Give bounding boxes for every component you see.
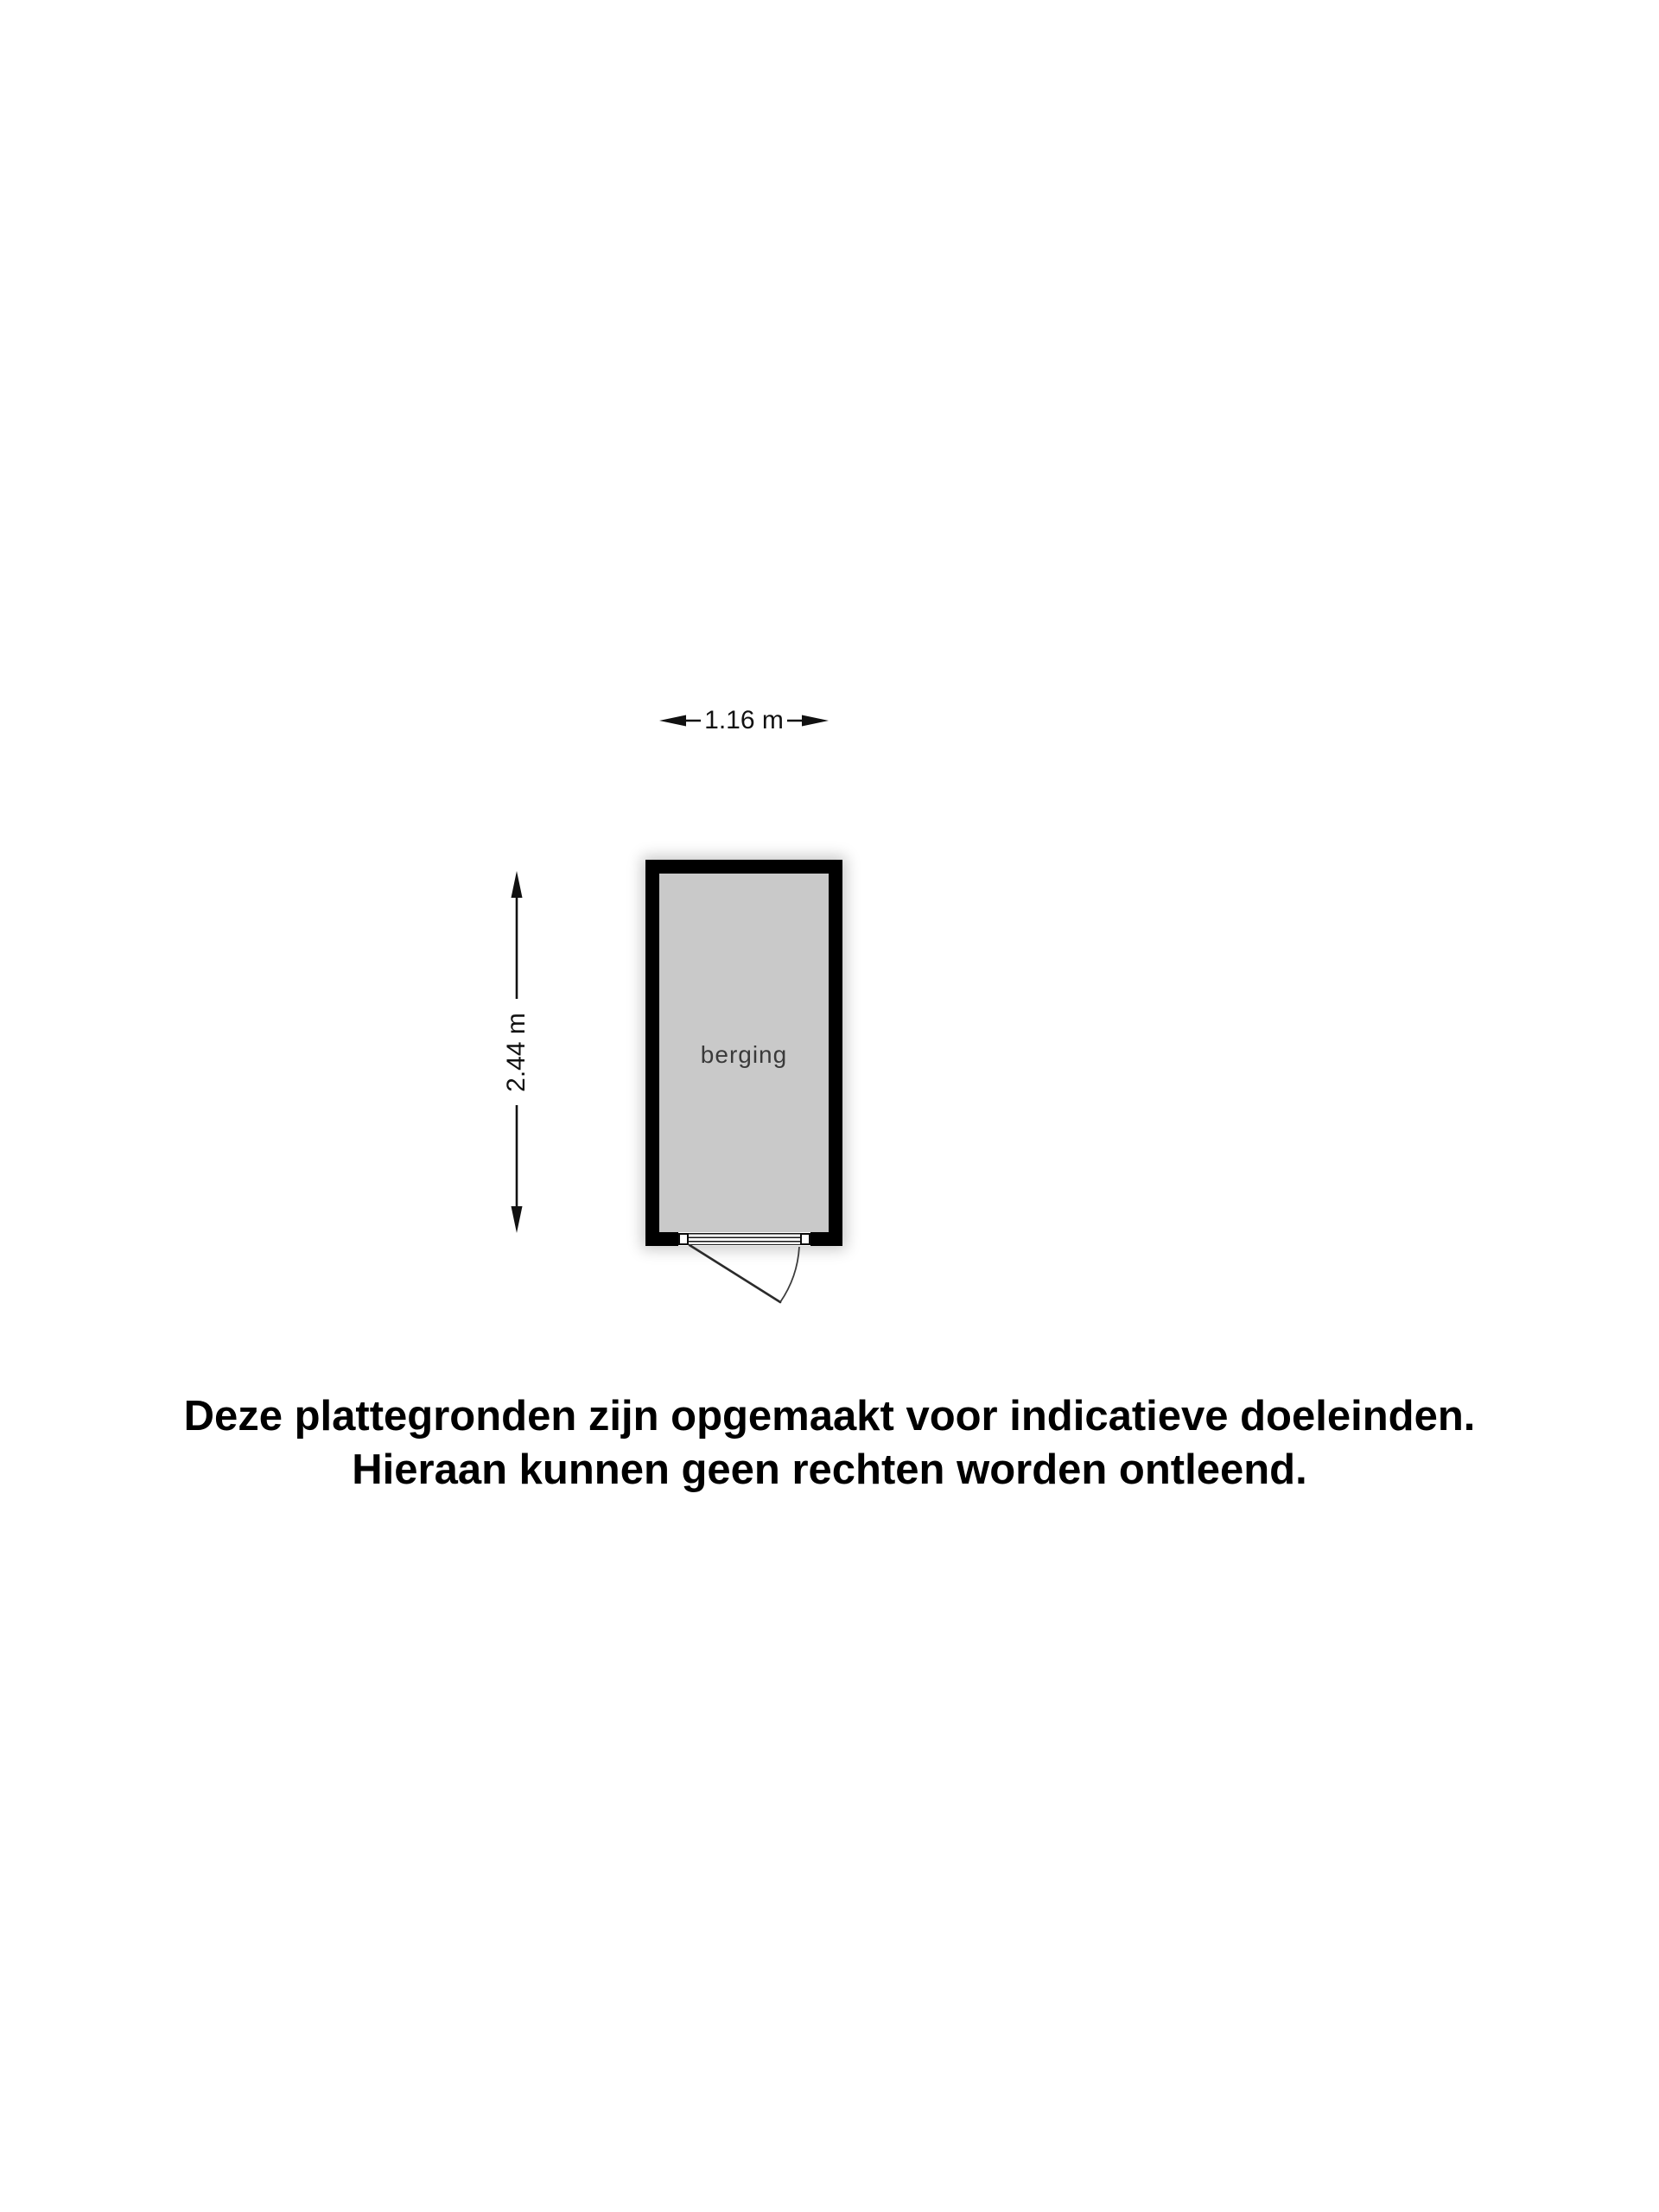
width-dimension: 1.16 m xyxy=(659,708,829,734)
height-dimension-label: 2.44 m xyxy=(504,1013,530,1092)
disclaimer-line-1: Deze plattegronden zijn opgemaakt voor i… xyxy=(0,1389,1659,1443)
floorplan-canvas: 1.16 m 2.44 m berging Deze plattegronde xyxy=(0,0,1659,2212)
dimension-arrow-up-icon xyxy=(505,871,528,999)
width-dimension-label: 1.16 m xyxy=(704,708,784,734)
dimension-arrow-right-icon xyxy=(787,709,829,732)
dimension-arrow-left-icon xyxy=(659,709,701,732)
height-dimension: 2.44 m xyxy=(504,871,530,1233)
door-swing-icon xyxy=(674,1236,821,1318)
room-label: berging xyxy=(701,1041,787,1069)
dimension-arrow-down-icon xyxy=(505,1105,528,1233)
disclaimer: Deze plattegronden zijn opgemaakt voor i… xyxy=(0,1389,1659,1497)
disclaimer-line-2: Hieraan kunnen geen rechten worden ontle… xyxy=(0,1443,1659,1497)
room-floor: berging xyxy=(659,874,829,1232)
